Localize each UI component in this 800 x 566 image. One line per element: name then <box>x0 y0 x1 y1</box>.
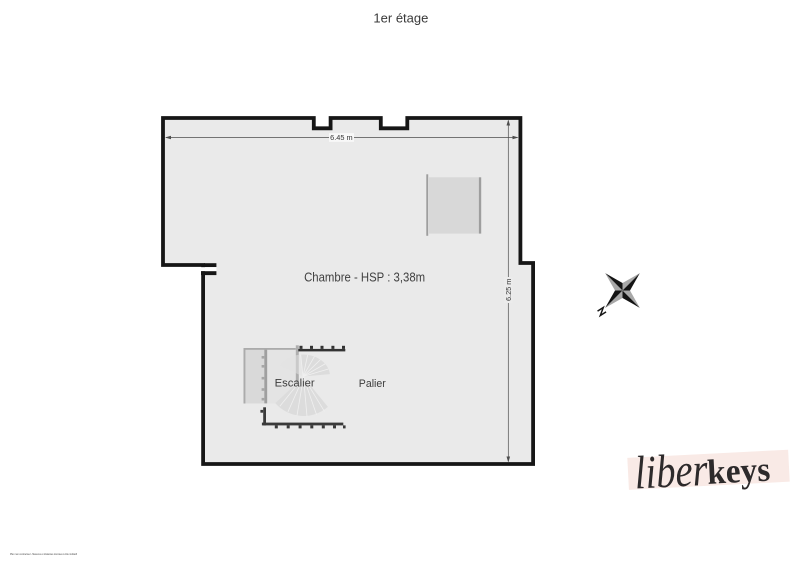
svg-text:Plan non contractuel - Mesures: Plan non contractuel - Mesures et distan… <box>10 552 77 556</box>
svg-text:Chambre - HSP : 3,38m: Chambre - HSP : 3,38m <box>304 270 425 284</box>
svg-text:liber: liber <box>633 444 709 500</box>
svg-text:6.25 m: 6.25 m <box>504 279 513 302</box>
svg-text:6.45 m: 6.45 m <box>330 133 353 142</box>
svg-text:1er étage: 1er étage <box>373 10 428 25</box>
svg-text:Palier: Palier <box>359 378 386 390</box>
svg-text:Escalier: Escalier <box>275 377 315 389</box>
svg-text:keys: keys <box>706 450 771 492</box>
